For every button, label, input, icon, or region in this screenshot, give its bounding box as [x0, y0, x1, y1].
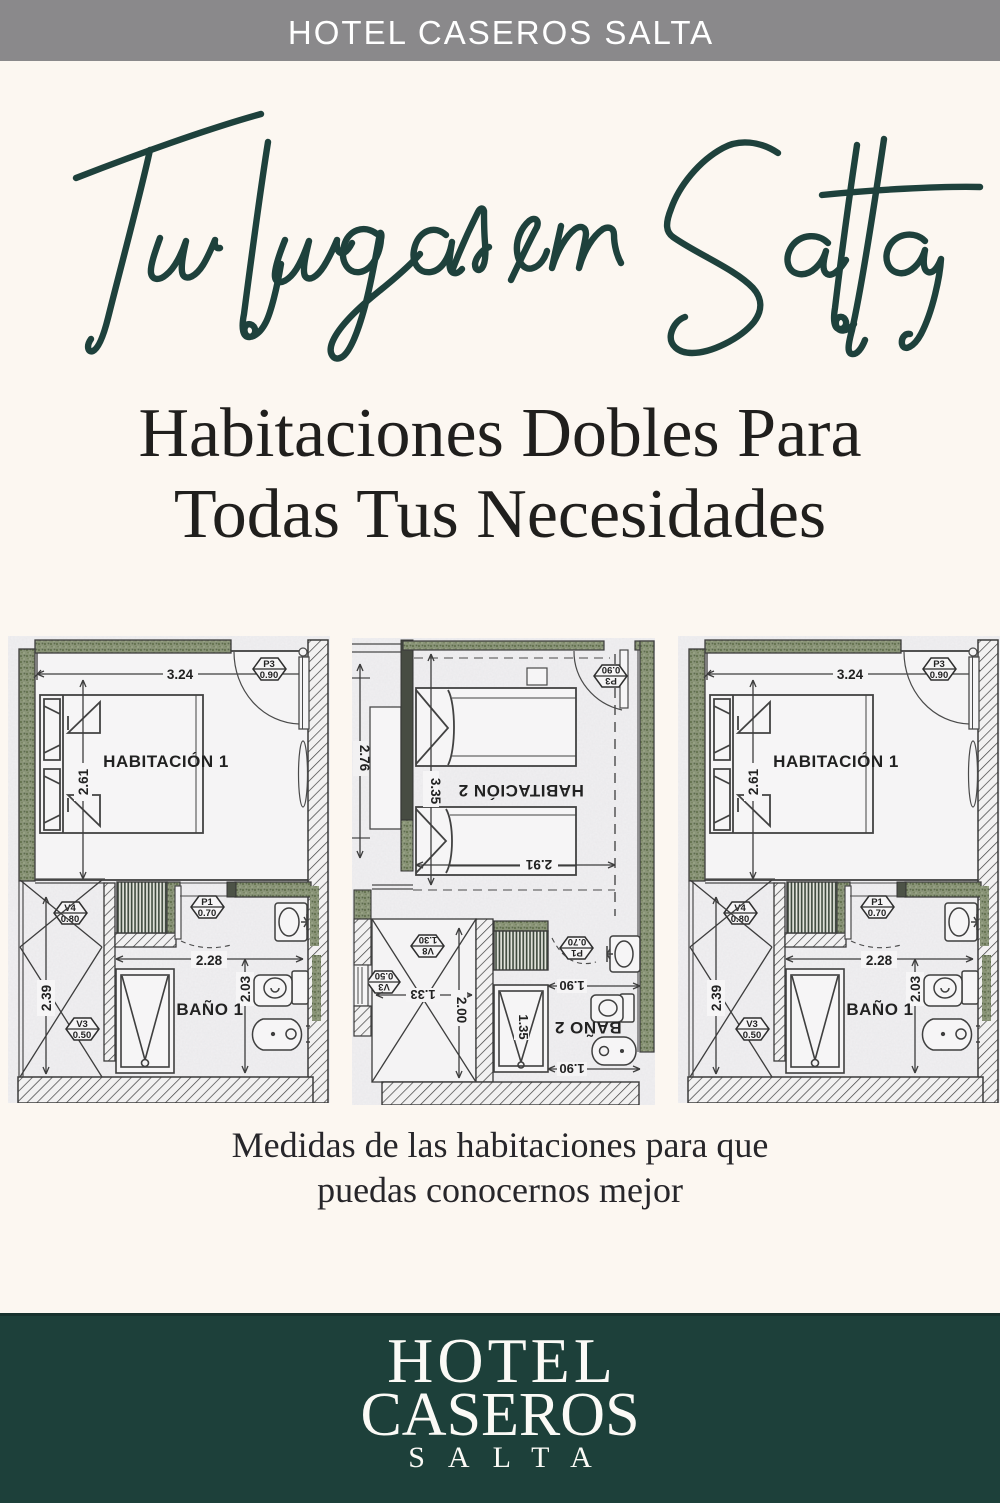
- svg-text:HABITACIÓN 2: HABITACIÓN 2: [458, 781, 584, 800]
- svg-text:1.33: 1.33: [410, 987, 435, 1002]
- svg-text:1.30: 1.30: [419, 934, 438, 945]
- svg-text:1.35: 1.35: [516, 1014, 531, 1039]
- svg-text:BAÑO 2: BAÑO 2: [554, 1018, 621, 1038]
- svg-text:1.90: 1.90: [559, 1061, 584, 1076]
- svg-text:2.91: 2.91: [525, 857, 552, 872]
- svg-text:V3: V3: [378, 981, 390, 992]
- svg-text:2.00: 2.00: [454, 997, 469, 1023]
- svg-text:0.70: 0.70: [568, 936, 587, 947]
- svg-text:0.50: 0.50: [375, 970, 394, 981]
- svg-text:2.76: 2.76: [357, 745, 372, 772]
- svg-text:P1: P1: [570, 947, 582, 958]
- svg-text:3.35: 3.35: [428, 778, 443, 805]
- svg-text:P3: P3: [605, 675, 617, 686]
- svg-text:0.90: 0.90: [602, 664, 621, 675]
- svg-text:1.90: 1.90: [559, 978, 584, 993]
- svg-text:V8: V8: [422, 945, 434, 956]
